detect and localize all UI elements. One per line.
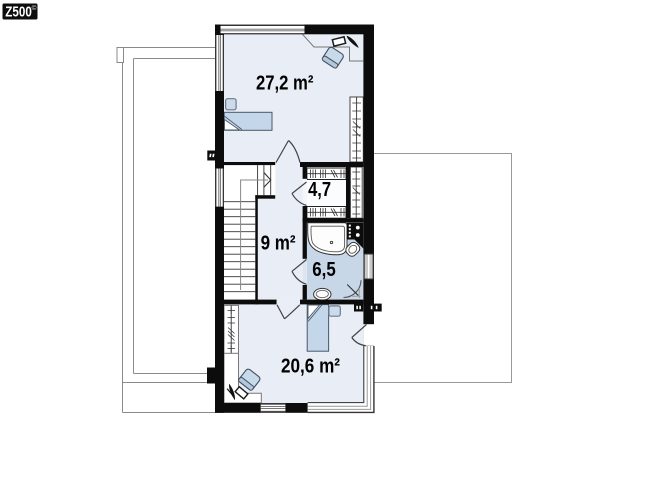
svg-text:Z500: Z500 bbox=[5, 5, 32, 21]
svg-text:9 m²: 9 m² bbox=[261, 233, 296, 255]
svg-text:20,6 m²: 20,6 m² bbox=[281, 355, 340, 377]
svg-text:©: © bbox=[32, 4, 37, 12]
svg-text:6,5: 6,5 bbox=[312, 259, 336, 281]
svg-text:27,2 m²: 27,2 m² bbox=[256, 73, 314, 95]
svg-text:4,7: 4,7 bbox=[308, 179, 331, 201]
